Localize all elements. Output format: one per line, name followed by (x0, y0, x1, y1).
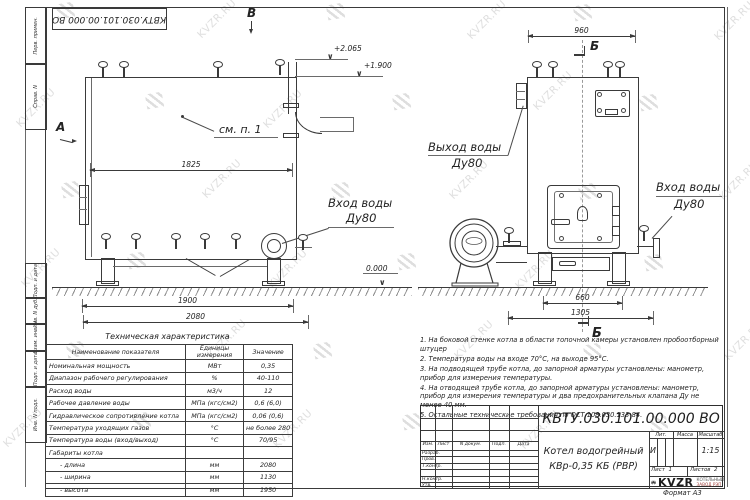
screw-icon (621, 108, 626, 113)
view-arrow-a-label: А (56, 120, 65, 134)
table-header-value: Значение (244, 345, 293, 360)
dimension-1305: 1305 (508, 318, 653, 319)
table-cell-name: Габариты котла (46, 446, 186, 458)
signature-row-label: Разраб. (422, 451, 452, 456)
col-list: Лист (435, 442, 452, 447)
engineering-drawing-sheet: KVZR.RUKVZR.RUKVZR.RUKVZR.RUKVZR.RUKVZR.… (0, 0, 750, 500)
base-plate (262, 281, 285, 286)
pipe-flange (653, 238, 660, 258)
table-cell-units: МПа (кгс/см2) (186, 397, 244, 409)
margin-label-box: Инв. N подл. (25, 386, 47, 443)
table-cell-units: мм (186, 459, 244, 471)
inlet-flange-inner (267, 239, 281, 253)
brand-sub2: ЗАВОД РЭП (697, 482, 724, 487)
view-arrow-a-head (72, 139, 77, 143)
elev-line (295, 76, 383, 77)
sheet-value: 1 (668, 467, 672, 473)
table-cell-name: - высота (46, 484, 186, 496)
elev-top-label: +2.065 (334, 44, 362, 53)
valve-icon (230, 233, 242, 249)
view-arrow-b-head (249, 29, 253, 34)
product-name: Котел водогрейный КВр-0,35 КБ (РВР) (538, 431, 649, 488)
valve-icon (130, 233, 142, 249)
valve-icon (297, 234, 309, 250)
table-row: - ширинамм1130 (46, 471, 293, 483)
scale-value: 1:15 (697, 446, 724, 455)
panel-slot (605, 109, 618, 115)
col-podp: Подп. (489, 442, 509, 447)
outlet-flange (516, 83, 527, 109)
valve-icon (614, 61, 626, 77)
screw-icon (597, 108, 602, 113)
margin-label: Подп. и дата (33, 264, 39, 298)
signature-row-label: Пров. (422, 457, 452, 462)
table-row: - длинамм2080 (46, 459, 293, 471)
table-cell-units: МПа (кгс/см2) (186, 409, 244, 421)
base-plate (533, 281, 556, 286)
flange-line (516, 99, 525, 100)
elev-zero-label: 0.000 (366, 264, 387, 273)
table-cell-name: Температура воды (вход/выход) (46, 434, 186, 446)
table-cell-units: м3/ч (186, 385, 244, 397)
table-cell-value: 2080 (244, 459, 293, 471)
front-inlet-label-1: Вход воды (656, 180, 720, 194)
table-row: Рабочее давление водыМПа (кгс/см2)0,6 (6… (46, 397, 293, 409)
table-cell-value: 12 (244, 385, 293, 397)
sheet-edge-right (727, 7, 728, 487)
col-ndoc: N докум. (452, 442, 489, 447)
table-cell-value: 1130 (244, 471, 293, 483)
pipe-stub (637, 246, 654, 247)
support-leg (538, 252, 552, 284)
margin-label: Справ. N (33, 85, 39, 108)
screw-icon (597, 92, 602, 97)
margin-label-box: Перв. примен. (25, 7, 47, 65)
table-cell-name: Расход воды (46, 385, 186, 397)
table-cell-name: Номинальная мощность (46, 360, 186, 372)
elev-line (363, 273, 398, 274)
margin-label-box: Подп. и дата (25, 350, 47, 388)
table-cell-name: - длина (46, 459, 186, 471)
margin-label-box: Подп. и дата (25, 263, 47, 299)
section-tick (578, 322, 588, 324)
sheet-cell: Лист 1 (651, 467, 687, 473)
table-cell-value: 0,06 (0,6) (244, 409, 293, 421)
top-stamp-box: КВТУ.030.101.00.000 ВО (52, 8, 167, 30)
front-outlet-underline (428, 155, 508, 156)
elev-check: ∨ (356, 70, 363, 78)
base-plate (96, 281, 119, 286)
side-inlet-label-2: Ду80 (346, 211, 376, 225)
frame-beam (113, 266, 267, 267)
table-cell-name: Температура уходящих газов (46, 422, 186, 434)
side-inlet-label-1: Вход воды (328, 196, 392, 210)
elev-check: ∨ (379, 279, 386, 287)
note-line: 1. На боковой стенке котла в области топ… (420, 336, 723, 354)
callout-underline (214, 137, 278, 138)
table-cell-name: Диапазон рабочего регулирования (46, 372, 186, 384)
valve-icon (503, 227, 515, 243)
margin-label: Взам. инв. N (33, 321, 39, 354)
dimension-960: 960 (528, 36, 635, 37)
elev-line (295, 59, 348, 60)
flue-duct-stub (320, 117, 354, 132)
table-header-name: Наименование показателя (46, 345, 186, 360)
kvzr-coil-icon (651, 478, 656, 487)
sheets-cell: Листов 2 (690, 467, 724, 473)
col-izm: Изм. (421, 442, 435, 447)
margin-label-box: Взам. инв. N (25, 323, 47, 352)
screw-icon (559, 193, 564, 198)
table-row: Гидравлическое сопротивление котлаМПа (к… (46, 409, 293, 421)
table-cell-name: Рабочее давление воды (46, 397, 186, 409)
screw-icon (559, 236, 564, 241)
brand-name: KVZR (658, 476, 693, 488)
table-cell-value: 40-110 (244, 372, 293, 384)
table-row: Диапазон рабочего регулирования%40-110 (46, 372, 293, 384)
chimney-flange (283, 133, 299, 138)
flange-line (516, 91, 525, 92)
front-outlet-label-1: Выход воды (428, 140, 501, 154)
title-block: КВТУ.030.101.00.000 ВО Изм. Лист N докум… (420, 405, 723, 487)
section-tick-stem (584, 46, 585, 56)
sheets-value: 2 (714, 467, 718, 473)
table-cell-units: °С (186, 422, 244, 434)
note-line: 3. На подводящей трубе котла, до запорно… (420, 365, 723, 383)
format-label: Формат А3 (663, 489, 702, 497)
front-inlet-underline (656, 196, 722, 197)
col-data: Дата (509, 442, 538, 447)
support-leg (612, 252, 626, 284)
margin-label: Подп. и дата (33, 352, 39, 386)
valve-icon (170, 233, 182, 249)
chimney-flange (283, 103, 299, 108)
valve-icon (638, 225, 650, 241)
note-line: 2. Температура воды на входе 70°С, на вы… (420, 355, 723, 364)
signature-row-label: Н.контр. (422, 477, 452, 482)
brand-cell: KVZR КОТЕЛЬНЫЙ ЗАВОД РЭП (649, 476, 724, 488)
scale-label: Масштаб (697, 432, 724, 438)
valve-icon (100, 233, 112, 249)
table-cell-value: не более 280 (244, 422, 293, 434)
dimension-660: 660 (543, 303, 622, 304)
valve-icon (199, 233, 211, 249)
table-row: Габариты котла (46, 446, 293, 458)
table-row: Расход водым3/ч12 (46, 385, 293, 397)
table-row: Температура воды (вход/выход)°С70/95 (46, 434, 293, 446)
table-cell-units: МВт (186, 360, 244, 372)
product-name-line2: КВр-0,35 КБ (РВР) (549, 460, 638, 474)
table-cell-units: мм (186, 471, 244, 483)
dimension-1900: 1900 (82, 306, 293, 307)
base-plate (607, 281, 630, 286)
screw-icon (597, 236, 602, 241)
dimension-2080: 2080 (83, 322, 308, 323)
sheet-label: Лист (651, 467, 665, 473)
elev-mid-label: +1.900 (364, 61, 392, 70)
door-handle (577, 206, 588, 221)
section-letter-top: Б (590, 39, 599, 53)
margin-label: Инв. N подл. (33, 398, 39, 431)
margin-label: Перв. примен. (33, 17, 39, 55)
table-cell-value: 0,6 (6,0) (244, 397, 293, 409)
valve-icon (547, 61, 559, 77)
section-tick (574, 54, 584, 56)
sheets-label: Листов (690, 467, 711, 473)
callout-label: см. п. 1 (219, 123, 262, 136)
valve-icon (118, 61, 130, 77)
tech-table-title: Техническая характеристика (45, 332, 290, 341)
door-slot (551, 219, 570, 225)
table-cell-units: °С (186, 434, 244, 446)
side-inlet-underline (328, 227, 394, 228)
margin-label-box: Справ. N (25, 63, 47, 130)
table-cell-value (244, 446, 293, 458)
mass-label: Масса (673, 432, 697, 438)
front-inlet-label-2: Ду80 (674, 197, 704, 211)
table-cell-name: - ширина (46, 471, 186, 483)
screw-icon (597, 193, 602, 198)
table-cell-units (186, 446, 244, 458)
front-outlet-label-2: Ду80 (452, 156, 482, 170)
valve-icon (97, 61, 109, 77)
table-row: Номинальная мощностьМВт0,35 (46, 360, 293, 372)
table-cell-value: 70/95 (244, 434, 293, 446)
title-block-doc-number: КВТУ.030.101.00.000 ВО (538, 406, 724, 431)
view-arrow-b-line (251, 21, 252, 29)
product-name-line1: Котел водогрейный (544, 445, 644, 459)
signature-row-label: Утв. (422, 483, 452, 488)
fan-duct (496, 246, 527, 263)
view-arrow-b-label: В (247, 6, 256, 20)
table-cell-value: 1950 (244, 484, 293, 496)
valve-icon (602, 61, 614, 77)
table-cell-units: % (186, 372, 244, 384)
elev-check: ∨ (327, 53, 334, 61)
side-hatch-fitting (79, 185, 89, 225)
signature-row-label: Т.контр. (422, 464, 452, 469)
top-stamp-doc-number: КВТУ.030.101.00.000 ВО (52, 14, 166, 24)
fitting-line (79, 209, 87, 210)
table-row: - высотамм1950 (46, 484, 293, 496)
tech-characteristics-table: Наименование показателя Единицы измерени… (45, 344, 293, 497)
drawer-handle (559, 261, 576, 266)
lit-value: И (649, 446, 657, 455)
table-cell-name: Гидравлическое сопротивление котла (46, 409, 186, 421)
table-cell-value: 0,35 (244, 360, 293, 372)
door-hinge (612, 226, 620, 236)
dimension-1825: 1825 (90, 170, 292, 171)
valve-icon (212, 61, 224, 77)
door-hinge (612, 206, 620, 216)
ground-hatch (52, 287, 412, 296)
table-cell-units: мм (186, 484, 244, 496)
valve-icon (531, 61, 543, 77)
table-header-units: Единицы измерения (186, 345, 244, 360)
fitting-line (79, 197, 87, 198)
table-row: Температура уходящих газов°Сне более 280 (46, 422, 293, 434)
ground-hatch (418, 287, 708, 296)
valve-icon (274, 59, 286, 75)
lit-label: Лит. (649, 432, 673, 438)
screw-icon (621, 92, 626, 97)
